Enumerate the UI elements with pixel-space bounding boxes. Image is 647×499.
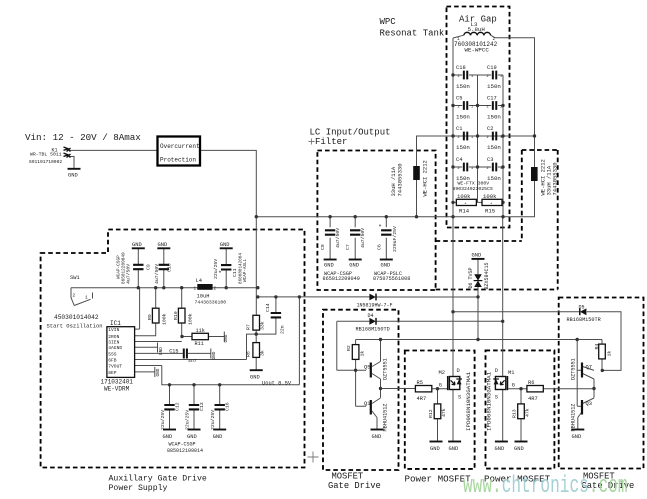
svg-text:4u7/50V: 4u7/50V	[126, 264, 132, 284]
svg-text:4u7/50V: 4u7/50V	[154, 264, 160, 284]
svg-text:Vin: 12 - 20V / 8Amax: Vin: 12 - 20V / 8Amax	[25, 132, 141, 143]
svg-text:WCAP-ASLL: WCAP-ASLL	[243, 258, 248, 282]
svg-text:Gate Drive: Gate Drive	[328, 481, 381, 491]
svg-text:7443055330: 7443055330	[552, 162, 559, 195]
svg-text:GND: GND	[449, 446, 459, 452]
svg-text:C8: C8	[320, 244, 326, 250]
svg-text:150n: 150n	[487, 144, 501, 151]
svg-text:GND: GND	[158, 242, 168, 248]
svg-text:C18: C18	[456, 65, 466, 71]
svg-text:3k: 3k	[260, 350, 266, 356]
svg-text:Filter: Filter	[315, 137, 347, 147]
svg-text:150n: 150n	[487, 83, 501, 90]
svg-text:G: G	[512, 382, 515, 388]
svg-text:47k: 47k	[441, 408, 447, 417]
svg-text:GND: GND	[156, 368, 161, 376]
svg-text:R9: R9	[147, 314, 153, 320]
svg-text:D5: D5	[579, 305, 585, 311]
svg-text:S: S	[458, 395, 461, 401]
svg-text:1VIN: 1VIN	[108, 327, 119, 333]
svg-text:33k: 33k	[260, 321, 266, 330]
svg-text:C2: C2	[487, 126, 493, 132]
svg-text:885012109014: 885012109014	[167, 448, 203, 454]
svg-text:2: 2	[493, 37, 496, 42]
svg-text:R2: R2	[346, 345, 352, 351]
svg-text:BZX584C15: BZX584C15	[484, 262, 490, 289]
svg-text:6FB: 6FB	[108, 358, 117, 364]
svg-text:GND: GND	[224, 334, 229, 342]
svg-text:11k: 11k	[196, 328, 205, 334]
svg-text:D: D	[457, 368, 460, 374]
svg-text:LC Input/Output: LC Input/Output	[310, 128, 391, 138]
svg-text:GND: GND	[430, 446, 440, 452]
svg-text:Q7: Q7	[586, 364, 592, 370]
svg-text:WE-VDRM: WE-VDRM	[104, 386, 130, 393]
svg-text:C13: C13	[199, 402, 205, 411]
svg-text:3IEN: 3IEN	[108, 340, 119, 346]
svg-text:Power Supply: Power Supply	[109, 483, 168, 493]
svg-text:Air Gap: Air Gap	[459, 15, 497, 25]
svg-text:1N5819HW-7-F: 1N5819HW-7-F	[357, 303, 393, 309]
svg-text:C10: C10	[167, 263, 173, 272]
svg-text:WPC: WPC	[380, 17, 397, 27]
svg-text:D6 TVSP: D6 TVSP	[468, 267, 474, 288]
svg-text:GND: GND	[495, 446, 505, 452]
svg-text:C4: C4	[456, 157, 462, 163]
svg-text:100k: 100k	[188, 313, 194, 325]
svg-text:4R7: 4R7	[417, 396, 427, 402]
svg-text:Uout 8.5V: Uout 8.5V	[262, 381, 292, 387]
svg-text:890324023025CS: 890324023025CS	[453, 186, 493, 192]
svg-text:D4: D4	[368, 313, 374, 319]
svg-text:C11: C11	[232, 268, 238, 277]
svg-text:7443055330: 7443055330	[397, 163, 404, 196]
svg-text:www.chtronics.com: www.chtronics.com	[463, 473, 628, 499]
svg-text:C1: C1	[456, 126, 462, 132]
svg-text:171032401: 171032401	[101, 379, 134, 386]
svg-text:Auxillary Gate Drive: Auxillary Gate Drive	[109, 473, 207, 483]
svg-text:Power MOSFET: Power MOSFET	[405, 473, 472, 484]
svg-text:M2: M2	[439, 370, 445, 376]
svg-text:150n: 150n	[456, 144, 470, 151]
svg-text:Protection: Protection	[160, 157, 196, 164]
svg-text:+: +	[379, 224, 382, 229]
svg-text:R15: R15	[485, 208, 495, 215]
svg-text:5SS: 5SS	[108, 351, 117, 357]
svg-text:Overcurrent: Overcurrent	[160, 143, 200, 150]
svg-text:R8: R8	[246, 351, 252, 357]
svg-text:Q3: Q3	[586, 401, 592, 407]
svg-text:22n: 22n	[280, 325, 286, 334]
svg-text:1: 1	[194, 287, 197, 292]
svg-text:R13: R13	[512, 409, 518, 418]
svg-text:WE-FTX 300V: WE-FTX 300V	[458, 181, 490, 187]
svg-text:GND: GND	[212, 351, 217, 359]
svg-text:D: D	[495, 368, 498, 374]
svg-text:IPD068N10N3GATMA1: IPD068N10N3GATMA1	[486, 371, 493, 431]
svg-text:2RON: 2RON	[108, 334, 119, 340]
svg-text:C9: C9	[146, 264, 152, 270]
svg-text:4u7/50V: 4u7/50V	[360, 228, 366, 248]
svg-text:865012209049: 865012209049	[323, 276, 360, 282]
svg-text:GND: GND	[220, 242, 230, 248]
svg-text:8EP: 8EP	[108, 370, 117, 376]
svg-text:DZT5551: DZT5551	[383, 358, 389, 380]
svg-text:C16: C16	[225, 402, 231, 411]
svg-text:C15: C15	[169, 349, 178, 355]
svg-text:450301014042: 450301014042	[54, 314, 99, 321]
svg-text:875075561008: 875075561008	[373, 276, 410, 282]
svg-text:R11: R11	[195, 341, 204, 347]
svg-text:C17: C17	[487, 96, 497, 102]
svg-text:WE-HCI 2212: WE-HCI 2212	[422, 160, 429, 196]
svg-text:R12: R12	[428, 409, 434, 418]
svg-text:+: +	[219, 271, 222, 276]
svg-text:GND: GND	[213, 434, 223, 440]
svg-text:DZT5551: DZT5551	[571, 358, 577, 380]
svg-text:22u/25V: 22u/25V	[185, 410, 191, 430]
svg-text:C5: C5	[456, 96, 462, 102]
svg-text:5.8uH: 5.8uH	[468, 26, 486, 33]
svg-text:C3: C3	[487, 157, 493, 163]
svg-text:GND: GND	[572, 434, 582, 440]
svg-text:IC1: IC1	[110, 320, 121, 327]
svg-text:SW1: SW1	[70, 275, 80, 281]
svg-text:GND: GND	[132, 242, 142, 248]
svg-text:GND: GND	[372, 434, 382, 440]
svg-text:WR-TBL 5011: WR-TBL 5011	[30, 152, 62, 158]
svg-text:IPD068N10N3GATMA1: IPD068N10N3GATMA1	[465, 371, 472, 431]
svg-text:220uF/25V: 220uF/25V	[392, 226, 398, 252]
svg-text:GND: GND	[68, 173, 78, 179]
svg-text:2: 2	[214, 287, 217, 292]
svg-text:C7: C7	[345, 244, 351, 250]
svg-text:L4: L4	[196, 278, 202, 284]
svg-text:R6: R6	[528, 380, 534, 386]
svg-text:4n7: 4n7	[188, 358, 197, 364]
svg-text:G: G	[439, 382, 442, 388]
svg-text:WE-WPCC: WE-WPCC	[465, 46, 490, 53]
svg-text:GND: GND	[159, 347, 164, 355]
svg-text:C14: C14	[265, 303, 271, 312]
svg-text:RB168M150TR: RB168M150TR	[567, 317, 601, 323]
svg-text:1k: 1k	[607, 351, 613, 357]
svg-text:22u/25V: 22u/25V	[213, 259, 219, 279]
svg-text:GND: GND	[472, 253, 482, 259]
svg-text:4AGND: 4AGND	[108, 345, 122, 351]
svg-text:4R7: 4R7	[528, 396, 538, 402]
svg-text:1k: 1k	[360, 351, 366, 357]
svg-text:M1: M1	[508, 370, 514, 376]
svg-text:R4: R4	[594, 344, 600, 350]
svg-text:C12: C12	[175, 402, 181, 411]
svg-text:150n: 150n	[456, 113, 470, 120]
svg-text:MBHU4151Z: MBHU4151Z	[383, 403, 389, 431]
svg-text:GND: GND	[250, 375, 260, 381]
svg-text:C6: C6	[376, 244, 382, 250]
svg-text:7VOUT: 7VOUT	[108, 364, 122, 370]
svg-text:MOSFET: MOSFET	[332, 472, 364, 482]
svg-text:R7: R7	[246, 324, 252, 330]
svg-text:691101710002: 691101710002	[29, 159, 62, 165]
svg-text:100k: 100k	[457, 193, 471, 200]
svg-text:S: S	[495, 395, 498, 401]
svg-text:GND: GND	[324, 263, 334, 269]
svg-text:Resonat Tank: Resonat Tank	[380, 29, 445, 39]
svg-text:100k: 100k	[483, 193, 497, 200]
svg-text:150n: 150n	[487, 113, 501, 120]
svg-text:1: 1	[85, 295, 88, 301]
svg-text:GND: GND	[187, 434, 197, 440]
svg-text:MBHU4151Z: MBHU4151Z	[571, 403, 577, 431]
svg-text:4u7/50V: 4u7/50V	[335, 228, 341, 248]
svg-text:22u/25V: 22u/25V	[210, 410, 216, 430]
svg-text:22u/25V: 22u/25V	[160, 410, 166, 430]
svg-text:Start Oszillation: Start Oszillation	[47, 322, 103, 329]
svg-text:GND: GND	[381, 263, 391, 269]
svg-text:47k: 47k	[525, 408, 531, 417]
svg-text:2: 2	[73, 293, 76, 299]
svg-text:R10: R10	[173, 311, 179, 320]
svg-text:GND: GND	[349, 263, 359, 269]
svg-text:150n: 150n	[456, 83, 470, 90]
svg-text:R14: R14	[459, 208, 470, 215]
svg-text:C19: C19	[487, 65, 497, 71]
svg-text:R5: R5	[417, 380, 423, 386]
svg-text:Q1: Q1	[364, 401, 370, 407]
svg-text:WCAP-CSGP: WCAP-CSGP	[169, 442, 196, 448]
svg-text:GND: GND	[163, 434, 173, 440]
svg-text:Q5: Q5	[364, 364, 370, 370]
svg-text:10uH: 10uH	[197, 294, 210, 300]
svg-text:GND: GND	[514, 446, 524, 452]
svg-text:100k: 100k	[162, 313, 168, 325]
svg-text:74438336100: 74438336100	[195, 300, 227, 306]
svg-text:RB168M150TD: RB168M150TD	[356, 327, 390, 333]
svg-text:1: 1	[457, 37, 460, 42]
